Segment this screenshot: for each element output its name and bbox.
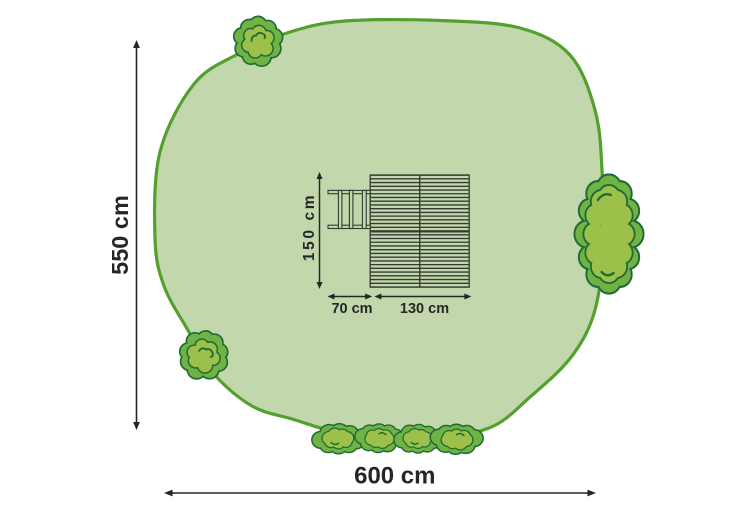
svg-text:150 cm: 150 cm [301,193,318,261]
svg-text:130 cm: 130 cm [400,301,449,317]
svg-text:600 cm: 600 cm [354,463,435,490]
svg-text:70 cm: 70 cm [331,301,372,317]
svg-text:550 cm: 550 cm [107,195,133,275]
